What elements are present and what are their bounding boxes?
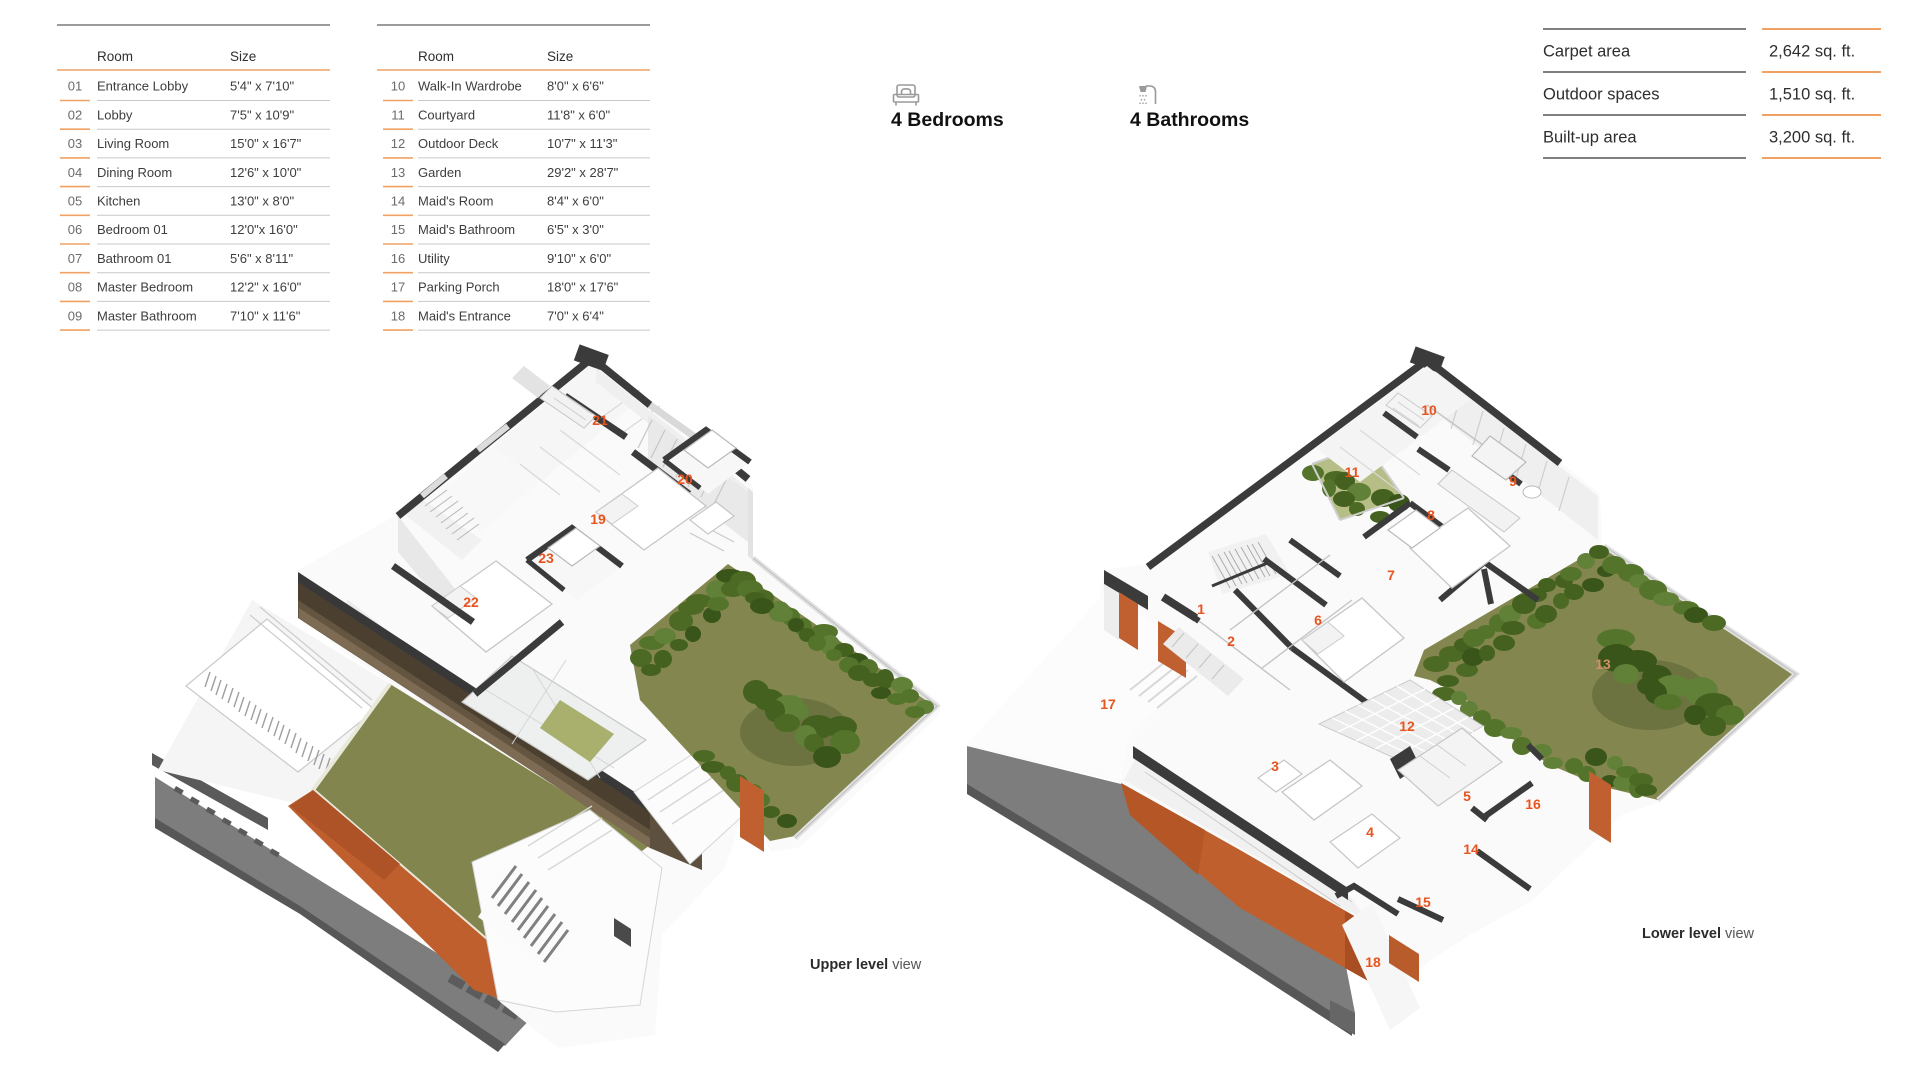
svg-text:5'6" x 8'11": 5'6" x 8'11" — [230, 251, 293, 266]
svg-text:Living Room: Living Room — [97, 136, 169, 151]
svg-text:2,642 sq. ft.: 2,642 sq. ft. — [1769, 43, 1855, 61]
svg-text:Kitchen: Kitchen — [97, 194, 140, 209]
svg-text:14: 14 — [391, 194, 405, 209]
svg-text:Bathroom 01: Bathroom 01 — [97, 251, 171, 266]
svg-text:7: 7 — [1387, 567, 1395, 583]
svg-text:07: 07 — [68, 251, 82, 266]
svg-text:6'5" x 3'0": 6'5" x 3'0" — [547, 222, 604, 237]
svg-text:2: 2 — [1227, 633, 1235, 649]
svg-text:12'6" x 10'0": 12'6" x 10'0" — [230, 165, 302, 180]
svg-text:08: 08 — [68, 280, 82, 295]
svg-text:15: 15 — [391, 222, 405, 237]
svg-text:Maid's Bathroom: Maid's Bathroom — [418, 222, 515, 237]
svg-text:5: 5 — [1463, 788, 1471, 804]
svg-text:Dining Room: Dining Room — [97, 165, 172, 180]
svg-text:22: 22 — [463, 594, 479, 610]
svg-text:15'0" x 16'7": 15'0" x 16'7" — [230, 136, 302, 151]
svg-text:03: 03 — [68, 136, 82, 151]
svg-text:20: 20 — [677, 471, 693, 487]
svg-text:4: 4 — [1366, 824, 1374, 840]
svg-text:Size: Size — [230, 49, 256, 64]
svg-text:10: 10 — [1421, 402, 1437, 418]
svg-text:Garden: Garden — [418, 165, 461, 180]
svg-text:21: 21 — [592, 412, 608, 428]
svg-text:18: 18 — [1365, 954, 1381, 970]
svg-text:1: 1 — [1197, 601, 1205, 617]
svg-text:3: 3 — [1271, 758, 1279, 774]
svg-text:12: 12 — [391, 136, 405, 151]
svg-text:7'0" x 6'4": 7'0" x 6'4" — [547, 308, 604, 323]
svg-text:02: 02 — [68, 107, 82, 122]
svg-text:Carpet area: Carpet area — [1543, 43, 1631, 61]
svg-text:14: 14 — [1463, 841, 1479, 857]
svg-text:3,200 sq. ft.: 3,200 sq. ft. — [1769, 129, 1855, 147]
svg-text:16: 16 — [391, 251, 405, 266]
svg-text:Entrance Lobby: Entrance Lobby — [97, 79, 189, 94]
svg-text:Lower level view: Lower level view — [1642, 926, 1755, 942]
svg-text:23: 23 — [538, 550, 554, 566]
svg-text:29'2" x 28'7": 29'2" x 28'7" — [547, 165, 619, 180]
svg-text:06: 06 — [68, 222, 82, 237]
svg-text:Master Bedroom: Master Bedroom — [97, 280, 193, 295]
svg-text:Outdoor spaces: Outdoor spaces — [1543, 86, 1659, 104]
svg-text:9: 9 — [1509, 473, 1517, 489]
svg-text:13: 13 — [391, 165, 405, 180]
svg-text:Upper level view: Upper level view — [810, 957, 922, 973]
svg-text:17: 17 — [1100, 696, 1116, 712]
svg-text:13: 13 — [1595, 656, 1611, 672]
svg-text:Outdoor Deck: Outdoor Deck — [418, 136, 499, 151]
svg-text:Courtyard: Courtyard — [418, 107, 475, 122]
svg-text:Maid's Entrance: Maid's Entrance — [418, 308, 511, 323]
svg-text:6: 6 — [1314, 612, 1322, 628]
svg-text:Room: Room — [97, 49, 133, 64]
svg-text:12'2" x 16'0": 12'2" x 16'0" — [230, 280, 302, 295]
svg-text:5'4" x 7'10": 5'4" x 7'10" — [230, 79, 294, 94]
svg-text:19: 19 — [590, 511, 606, 527]
svg-text:16: 16 — [1525, 796, 1541, 812]
svg-text:Master Bathroom: Master Bathroom — [97, 308, 197, 323]
svg-text:Maid's Room: Maid's Room — [418, 194, 493, 209]
svg-text:Utility: Utility — [418, 251, 450, 266]
svg-text:8'4" x 6'0": 8'4" x 6'0" — [547, 194, 604, 209]
svg-text:Built-up area: Built-up area — [1543, 129, 1637, 147]
svg-text:01: 01 — [68, 79, 82, 94]
svg-text:Bedroom 01: Bedroom 01 — [97, 222, 168, 237]
svg-text:7'5" x 10'9": 7'5" x 10'9" — [230, 107, 294, 122]
svg-text:18: 18 — [391, 308, 405, 323]
svg-text:12'0"x 16'0": 12'0"x 16'0" — [230, 222, 298, 237]
svg-text:Walk-In Wardrobe: Walk-In Wardrobe — [418, 79, 522, 94]
svg-text:18'0" x 17'6": 18'0" x 17'6" — [547, 280, 619, 295]
svg-text:05: 05 — [68, 194, 82, 209]
svg-text:10: 10 — [391, 79, 405, 94]
svg-text:Room: Room — [418, 49, 454, 64]
svg-text:10'7" x 11'3": 10'7" x 11'3" — [547, 136, 618, 151]
svg-text:4 Bathrooms: 4 Bathrooms — [1130, 109, 1249, 131]
svg-text:9'10" x 6'0": 9'10" x 6'0" — [547, 251, 611, 266]
svg-text:Lobby: Lobby — [97, 107, 133, 122]
svg-text:04: 04 — [68, 165, 82, 180]
svg-text:09: 09 — [68, 308, 82, 323]
svg-text:8'0" x 6'6": 8'0" x 6'6" — [547, 79, 604, 94]
svg-text:Size: Size — [547, 49, 573, 64]
svg-text:7'10" x 11'6": 7'10" x 11'6" — [230, 308, 301, 323]
svg-text:12: 12 — [1399, 718, 1415, 734]
svg-text:15: 15 — [1415, 894, 1431, 910]
svg-text:11: 11 — [391, 107, 405, 122]
svg-text:11'8" x 6'0": 11'8" x 6'0" — [547, 107, 610, 122]
svg-text:Parking Porch: Parking Porch — [418, 280, 500, 295]
svg-text:1,510 sq. ft.: 1,510 sq. ft. — [1769, 86, 1855, 104]
svg-text:4 Bedrooms: 4 Bedrooms — [891, 109, 1004, 131]
svg-text:11: 11 — [1345, 464, 1360, 480]
svg-text:17: 17 — [391, 280, 405, 295]
svg-text:8: 8 — [1427, 507, 1435, 523]
svg-text:13'0" x 8'0": 13'0" x 8'0" — [230, 194, 294, 209]
